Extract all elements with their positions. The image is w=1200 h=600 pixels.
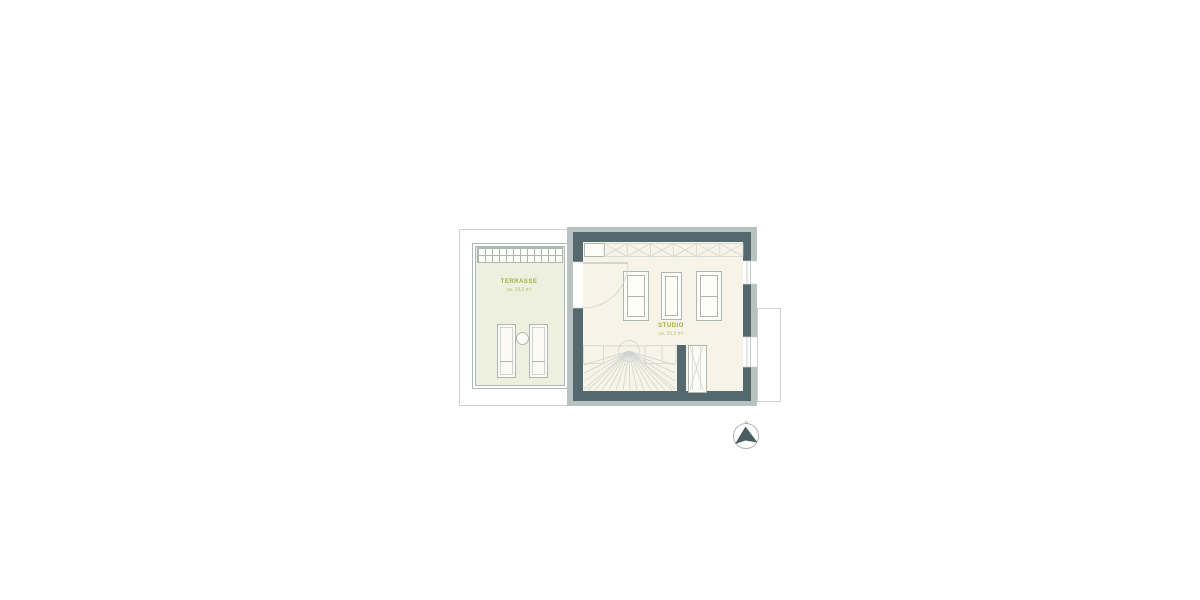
furniture-table-middle [661, 272, 682, 320]
window-upper [743, 261, 757, 284]
north-arrow-icon [734, 424, 759, 449]
stair-partition-wall [677, 345, 686, 391]
window-lower [743, 337, 757, 367]
furniture-inner [665, 276, 678, 316]
cabinet [584, 243, 605, 257]
terrace-door-opening [573, 262, 583, 308]
north-label: N [742, 420, 751, 425]
sun-lounger-left [497, 324, 516, 378]
sun-lounger-right [529, 324, 548, 378]
furniture-bed-right [696, 271, 722, 321]
terrace-planter-strip [477, 247, 563, 263]
furniture-divider [700, 296, 718, 297]
terrace-floor [475, 246, 565, 386]
duct-shaft [688, 345, 707, 393]
terrace-side-table [516, 332, 529, 345]
floorplan-canvas: TERRASSE ca. 18,5 m² STUDIO ca. 26,5 m² … [0, 0, 1200, 600]
adjacent-roof-outline [757, 308, 781, 402]
furniture-divider [627, 296, 645, 297]
terrace-parapet [472, 243, 568, 389]
furniture-bed-left [623, 271, 649, 321]
